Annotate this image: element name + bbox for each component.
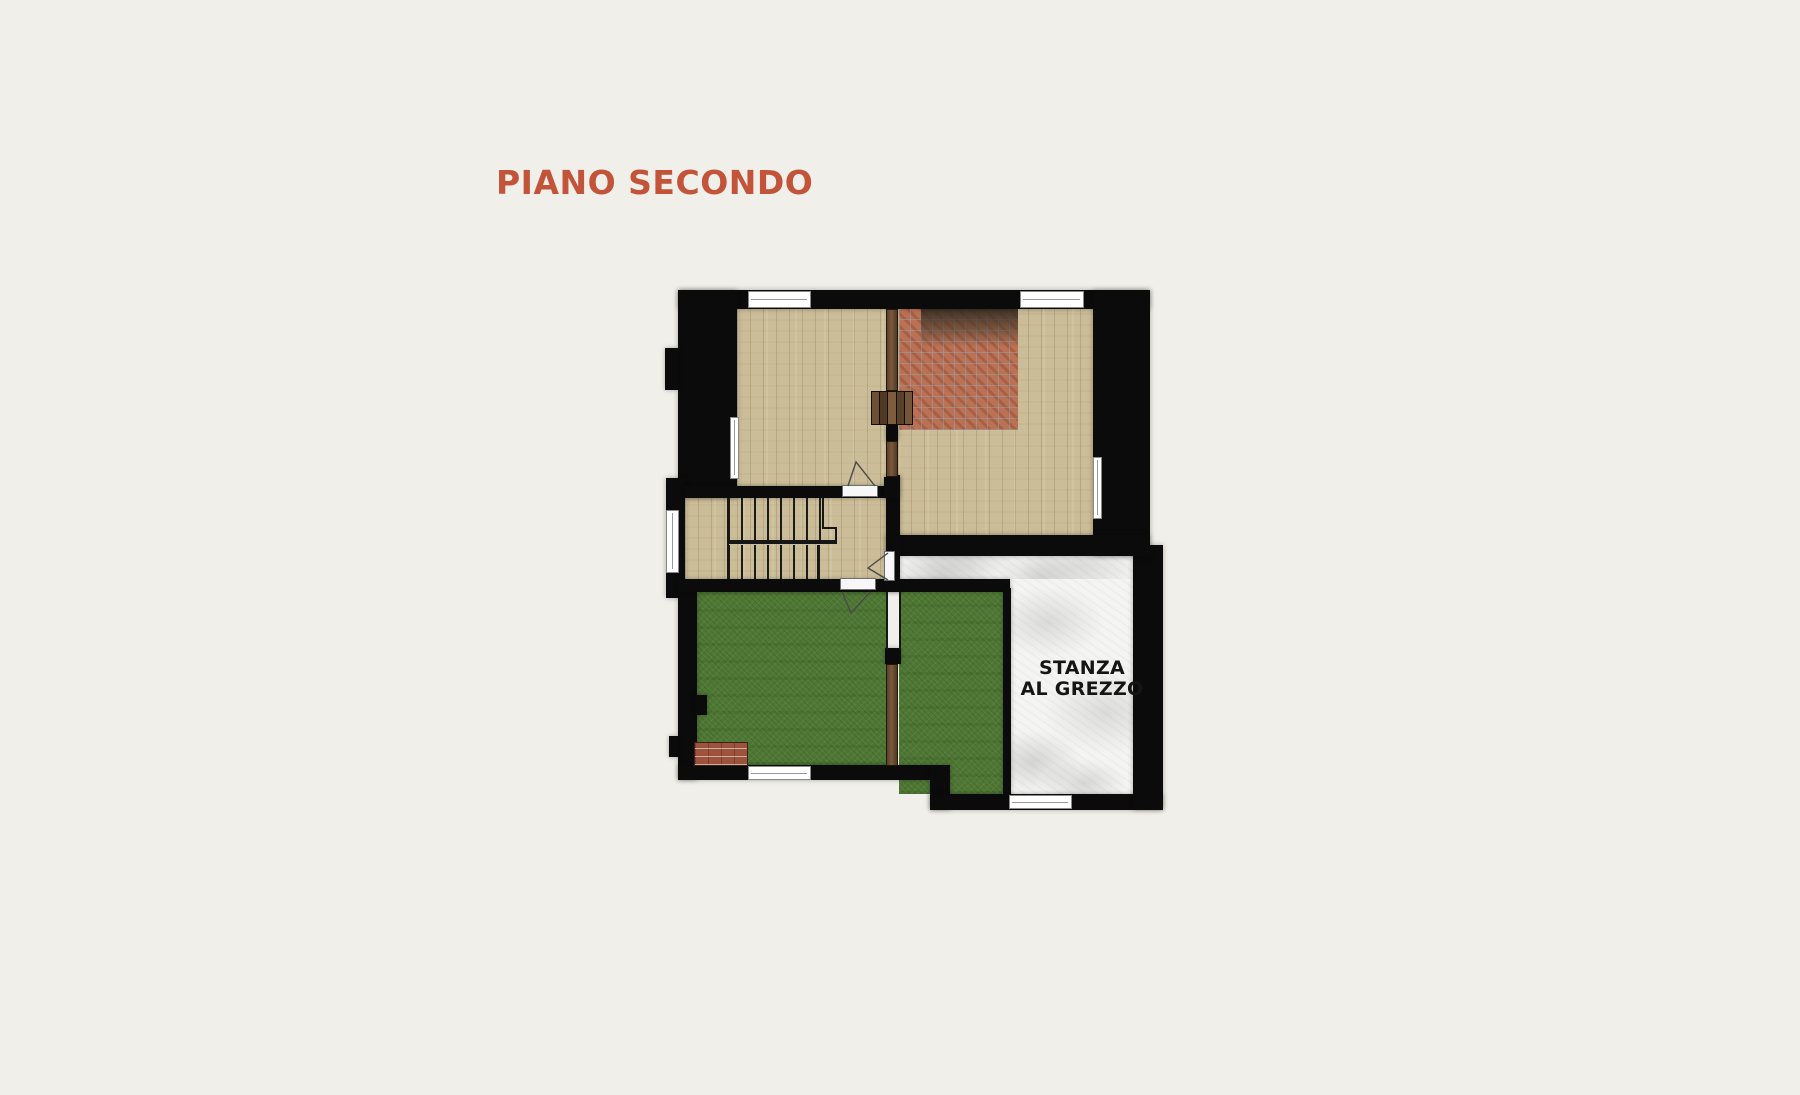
terrace-brick-stove (694, 742, 748, 766)
stanza-label-line2: AL GREZZO (1008, 679, 1156, 700)
door-leaf-landing-to-stanza (884, 551, 895, 581)
window-left-inner (730, 417, 739, 479)
stairs-step-edge-v1 (822, 498, 824, 529)
wall-left-chimney-bump (665, 348, 678, 390)
terrace-left-floor (697, 592, 887, 765)
brick-burnt-patch (921, 309, 1018, 347)
stairs-left-edge (727, 498, 729, 579)
wall-left-upper-mass (678, 290, 737, 498)
terrace-timber-post (886, 664, 898, 766)
terrace-right-floor (899, 588, 1003, 794)
timber-partition-lower (886, 441, 898, 477)
terrace-divider-line-right (899, 592, 901, 650)
timber-plank-panel (871, 391, 913, 425)
wall-room-right-bottom (886, 535, 1150, 556)
terrace-divider-line-left (886, 592, 888, 650)
window-right (1093, 457, 1102, 519)
window-left-stairs (666, 510, 679, 573)
timber-partition-block (886, 425, 898, 441)
terrace-divider-block (885, 648, 901, 664)
floor-plan: STANZA AL GREZZO (0, 0, 1800, 1095)
stairs-lower-edge (817, 545, 819, 579)
wall-left-lower-bump (669, 736, 678, 757)
window-top-left (748, 291, 811, 308)
door-leaf-stairs-to-room (842, 485, 878, 497)
window-top-right (1020, 291, 1084, 308)
stairs-lower-flight (728, 545, 820, 579)
timber-partition-upper (886, 309, 898, 391)
wall-partition-foot (884, 477, 900, 498)
wall-terrace-notch (695, 695, 707, 715)
room-upper-left-floor (737, 309, 886, 486)
floor-plan-page: PIANO SECONDO (0, 0, 1800, 1095)
stairs-mid-rail (728, 540, 837, 544)
stanza-room-label: STANZA AL GREZZO (1008, 658, 1156, 700)
page-title: PIANO SECONDO (496, 163, 813, 202)
stanza-label-line1: STANZA (1008, 658, 1156, 679)
window-bottom-stanza (1009, 795, 1072, 809)
window-bottom-terrace (748, 766, 811, 780)
door-leaf-landing-to-terrace (840, 578, 876, 590)
stairs-upper-flight (728, 498, 823, 541)
brick-inlay-floor (899, 309, 1018, 430)
